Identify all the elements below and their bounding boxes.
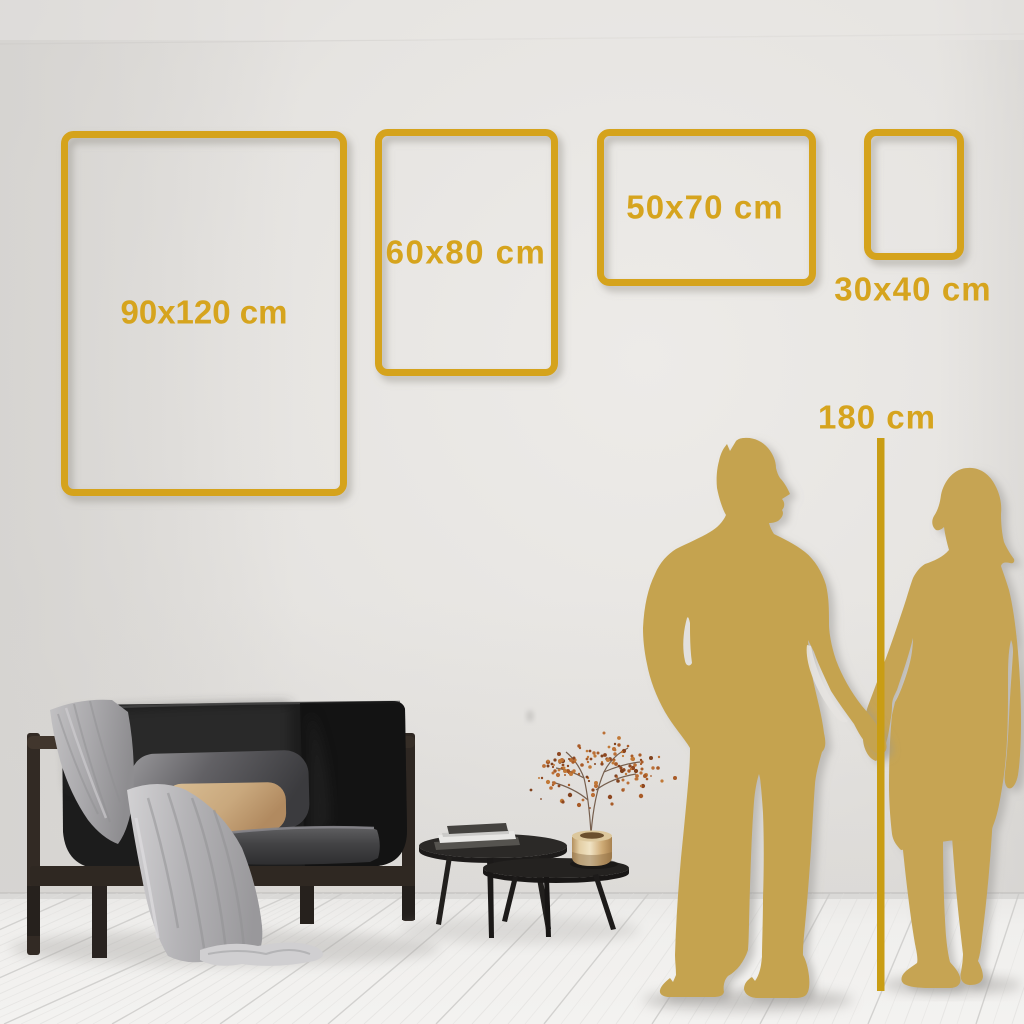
svg-text:30x40 cm: 30x40 cm [834,271,991,308]
svg-text:90x120 cm: 90x120 cm [121,294,288,331]
svg-text:50x70 cm: 50x70 cm [626,189,783,226]
svg-text:180 cm: 180 cm [818,399,936,436]
svg-text:60x80 cm: 60x80 cm [386,234,547,271]
